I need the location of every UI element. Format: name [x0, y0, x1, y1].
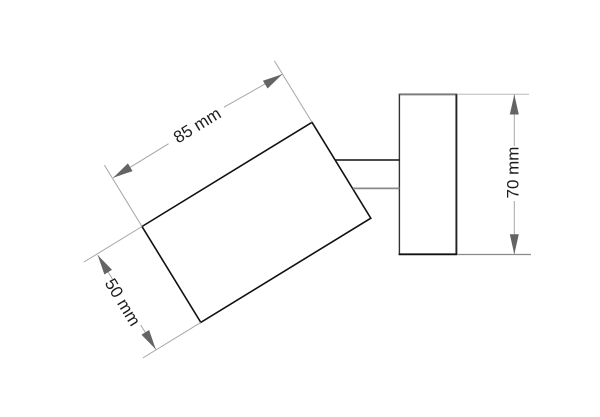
svg-text:70 mm: 70 mm: [504, 147, 523, 199]
